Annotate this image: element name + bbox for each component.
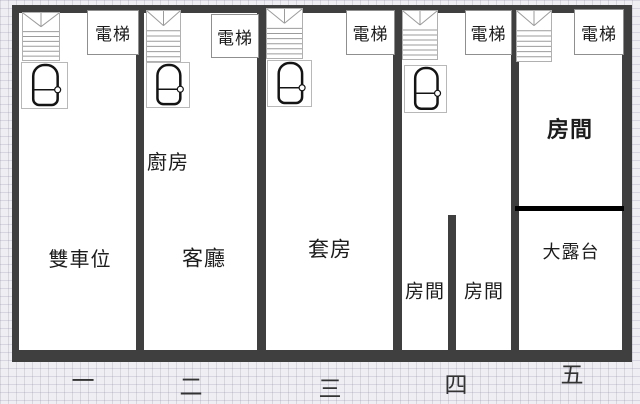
- staircase-icon: [516, 10, 552, 62]
- outer-wall-right: [622, 5, 632, 362]
- room-label: 客廳: [182, 249, 226, 270]
- elevator-label: 電梯: [471, 20, 507, 45]
- staircase-icon: [146, 10, 181, 62]
- staircase-icon: [22, 12, 60, 61]
- unit-wall-3: [257, 13, 266, 350]
- unit-wall-2: [136, 13, 144, 350]
- elevator-box: 電梯: [465, 10, 512, 55]
- staircase-icon: [266, 8, 303, 59]
- unit-wall-5: [511, 13, 519, 350]
- elevator-box: 電梯: [87, 10, 139, 55]
- elevator-box: 電梯: [211, 14, 259, 58]
- floor-number-label: 二: [180, 376, 203, 399]
- elevator-label: 電梯: [217, 24, 253, 49]
- room-divider-unit-4: [448, 215, 456, 350]
- floor-number-label: 一: [72, 370, 95, 393]
- staircase-icon: [402, 10, 438, 60]
- floor-number-label: 五: [561, 364, 584, 387]
- room-label: 廚房: [147, 153, 189, 173]
- bathtub-icon: [267, 60, 312, 107]
- floor-number-label: 三: [319, 378, 342, 401]
- elevator-box: 電梯: [346, 10, 395, 55]
- floorplan-canvas: 電梯雙車位一電梯廚房客廳二電梯套房三電梯房間房間四電梯房間大露台五: [0, 0, 640, 404]
- elevator-label: 電梯: [95, 20, 131, 45]
- elevator-label: 電梯: [353, 20, 389, 45]
- elevator-box: 電梯: [574, 9, 624, 55]
- elevator-label: 電梯: [581, 20, 617, 45]
- room-label: 房間: [547, 119, 593, 141]
- room-label: 雙車位: [49, 250, 112, 270]
- outer-wall-bottom: [12, 350, 632, 362]
- unit-wall-4: [393, 13, 402, 350]
- bathtub-icon: [146, 62, 190, 108]
- bathtub-icon: [404, 65, 447, 113]
- room-label: 大露台: [543, 243, 600, 261]
- room-label: 房間: [405, 283, 445, 302]
- terrace-divider-unit-5: [515, 206, 624, 211]
- outer-wall-left: [12, 5, 19, 362]
- bathtub-icon: [21, 62, 68, 109]
- room-label: 房間: [464, 283, 504, 302]
- room-label: 套房: [308, 240, 352, 261]
- floor-number-label: 四: [445, 374, 468, 397]
